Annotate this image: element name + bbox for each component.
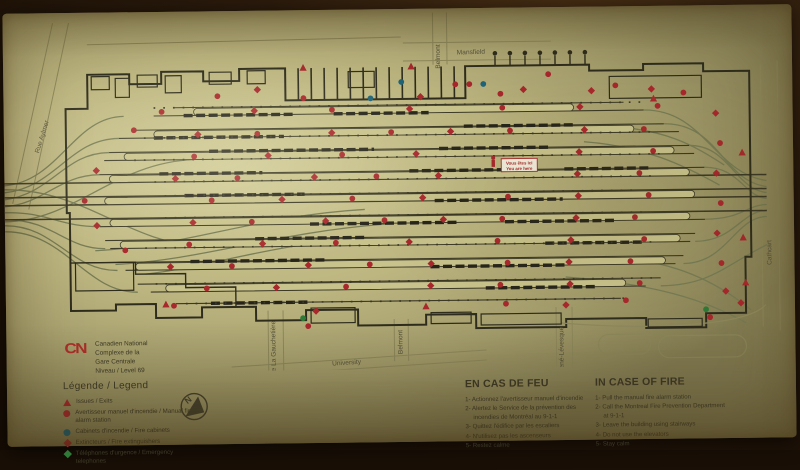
map-marker-fire-alarm: [680, 90, 686, 96]
train: [184, 114, 294, 115]
curve-track: [683, 217, 768, 264]
street-label-cathcart: Cathcart: [766, 240, 773, 265]
train: [435, 199, 563, 201]
street-label-rue-left: Rue Aylmer: [34, 119, 51, 154]
street-line: [432, 13, 433, 65]
map-marker-fire-alarm: [655, 103, 661, 109]
fire-title-en: IN CASE OF FIRE: [595, 375, 727, 389]
street-label-rene-levesque: René-Lévesque: [558, 326, 566, 373]
street-label-university: University: [332, 359, 362, 368]
map-marker-extinguisher: [93, 222, 100, 229]
vent-head: [553, 50, 558, 55]
legend-title: Légende / Legend: [63, 380, 195, 393]
building-outline: [65, 48, 767, 365]
street-line: [403, 59, 551, 61]
train: [190, 260, 327, 262]
vent-head: [508, 51, 513, 56]
map-marker-fire-alarm: [718, 200, 724, 206]
train: [159, 173, 262, 174]
map-marker-extinguisher: [576, 103, 583, 110]
vent-head: [523, 51, 528, 56]
driveway-loop: [598, 334, 650, 355]
fire-step: 2- Alertez le Service de la prévention d…: [465, 403, 591, 423]
street-label-de-la-gauchetiere: De La Gauchetière: [270, 321, 278, 374]
street-line: [760, 65, 763, 327]
map-marker-fire-alarm: [717, 140, 723, 146]
map-marker-fire-alarm: [305, 323, 311, 329]
room-outline: [481, 313, 561, 325]
legend-item-fire-cabinet: Cabinets d'incendie / Fire cabinets: [63, 426, 195, 436]
room-outline: [247, 71, 265, 84]
map-marker-exit: [422, 302, 429, 309]
fire-step: 5- Stay calm: [596, 438, 728, 449]
driveway-road: [561, 305, 766, 328]
fire-step: 2- Call the Montreal Fire Prevention Dep…: [595, 401, 727, 421]
map-marker-extinguisher: [712, 109, 719, 116]
exit-arrow-icon: [63, 399, 71, 406]
street-line: [403, 41, 551, 43]
map-marker-exit: [299, 64, 306, 71]
street-label-mansfield: Mansfield: [457, 49, 486, 57]
vent-head: [493, 51, 498, 56]
legend-item-label: Téléphones d'urgence / Emergency telepho…: [76, 449, 196, 466]
curve-track: [695, 211, 767, 242]
legend-item-exits: Issues / Exits: [63, 397, 195, 407]
photo-background: Belmont Mansfield Rue Aylmer De La Gauch…: [0, 0, 800, 450]
brand-name: Canadien National: [95, 340, 148, 350]
street-line: [87, 37, 401, 45]
compass-north-label: N: [182, 394, 193, 406]
room-outline: [209, 72, 231, 84]
brand-block: CN Canadien National Complexe de la Gare…: [64, 340, 148, 377]
compass: N: [177, 389, 211, 428]
room-outline: [165, 76, 181, 93]
platforms: [104, 102, 696, 292]
map-marker-fire-cabinet: [480, 81, 486, 87]
street-label-belmont-bottom: Belmont: [397, 330, 404, 354]
map-marker-extinguisher: [648, 85, 655, 92]
train: [486, 287, 598, 288]
map-marker-fire-alarm: [719, 260, 725, 266]
map-marker-fire-alarm: [707, 314, 713, 320]
map-marker-fire-alarm: [131, 127, 137, 133]
map-marker-fire-alarm: [497, 91, 503, 97]
fire-title-fr: EN CAS DE FEU: [465, 377, 591, 391]
room-outline: [609, 75, 701, 98]
fire-alarm-dot-icon: [63, 410, 70, 417]
map-marker-fire-alarm: [612, 82, 618, 88]
train: [505, 220, 617, 221]
fire-cabinet-dot-icon: [63, 429, 70, 436]
train: [255, 237, 367, 238]
street-label-belmont-top: Belmont: [435, 44, 442, 68]
evacuation-map-sign: Belmont Mansfield Rue Aylmer De La Gauch…: [2, 4, 796, 447]
map-marker-fire-alarm: [637, 280, 643, 286]
compass-rose-icon: N: [177, 389, 211, 423]
map-marker-extinguisher: [562, 301, 569, 308]
legend-item-emergency-phone: Téléphones d'urgence / Emergency telepho…: [64, 449, 196, 466]
fire-instructions-french: EN CAS DE FEU 1- Actionnez l'avertisseur…: [465, 377, 592, 450]
map-marker-extinguisher: [588, 87, 595, 94]
brand-level: Niveau / Level 69: [95, 367, 148, 377]
emergency-phone-diamond-icon: [64, 450, 72, 458]
legend-item-fire-alarm: Avertisseur manuel d'incendie / Manual f…: [63, 408, 195, 425]
you-are-here-text-fr: Vous êtes ici: [506, 160, 533, 165]
legend-item-label: Issues / Exits: [76, 398, 113, 406]
map-marker-extinguisher: [254, 86, 261, 93]
map-marker-fire-cabinet: [368, 95, 374, 101]
fire-instructions-english: IN CASE OF FIRE 1- Pull the manual fire …: [595, 375, 728, 448]
legend-item-extinguisher: Extincteurs / Fire extinguishers: [64, 438, 196, 447]
map-marker-fire-alarm: [214, 93, 220, 99]
map-marker-exit: [407, 63, 414, 70]
map-marker-exit: [742, 279, 749, 286]
room-outline: [348, 71, 374, 87]
fire-steps-fr: 1- Actionnez l'avertisseur manuel d'ince…: [465, 394, 592, 450]
map-marker-emergency-phone: [703, 306, 709, 312]
cn-logo: CN: [64, 342, 86, 355]
room-outline: [91, 77, 109, 90]
train: [464, 125, 574, 126]
vent-head: [583, 50, 588, 55]
fire-step: 5- Restez calme: [466, 439, 592, 450]
curve-track: [704, 167, 766, 200]
map-marker-fire-alarm: [452, 81, 458, 87]
driveway-loop: [658, 335, 746, 358]
street-line: [572, 307, 573, 374]
curve-track: [689, 145, 767, 194]
legend-item-label: Cabinets d'incendie / Fire cabinets: [75, 427, 169, 436]
map-marker-extinguisher: [93, 167, 100, 174]
map-marker-exit: [740, 234, 747, 241]
map-marker-fire-alarm: [503, 301, 509, 307]
legend: Légende / Legend Issues / Exits Avertiss…: [63, 380, 196, 469]
brand-text: Canadien National Complexe de la Gare Ce…: [95, 340, 148, 377]
map-marker-extinguisher: [520, 86, 527, 93]
map-marker-exit: [738, 149, 745, 156]
train: [439, 147, 549, 148]
fire-steps-en: 1- Pull the manual fire alarm station 2-…: [595, 392, 728, 448]
map-marker-fire-alarm: [159, 109, 165, 115]
room-outline: [75, 262, 133, 291]
you-are-here-marker: [491, 156, 495, 167]
extinguisher-diamond-icon: [63, 439, 71, 447]
station-track-map: Belmont Mansfield Rue Aylmer De La Gauch…: [2, 4, 795, 374]
vent-head: [538, 50, 543, 55]
room-outline: [115, 78, 129, 97]
room-outline: [137, 75, 157, 87]
vent-head: [568, 50, 573, 55]
train: [431, 265, 566, 267]
street-line: [446, 12, 447, 64]
map-marker-fire-alarm: [545, 71, 551, 77]
you-are-here-text-en: You are here: [506, 166, 533, 171]
street-line: [556, 307, 557, 374]
map-marker-exit: [162, 301, 169, 308]
map-marker-fire-alarm: [466, 81, 472, 87]
legend-item-label: Extincteurs / Fire extinguishers: [76, 438, 161, 447]
street-line: [777, 60, 780, 330]
map-marker-fire-cabinet: [398, 79, 404, 85]
curve-track: [4, 116, 125, 185]
curve-track: [5, 219, 105, 250]
